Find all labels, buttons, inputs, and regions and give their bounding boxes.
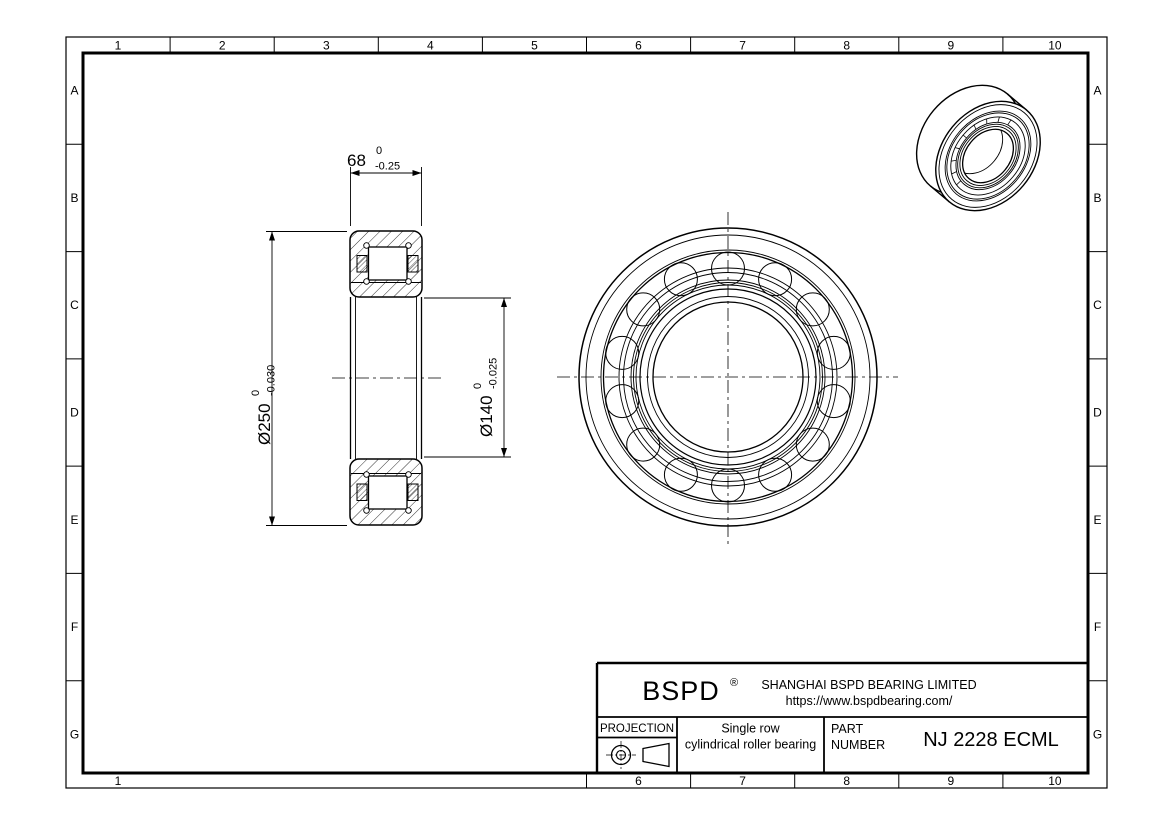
engineering-drawing: 1 2 3 4 5 6 7 8 9 10 1 6 7 8 9 10 A B C … (0, 0, 1169, 826)
grid-label: E (1093, 513, 1101, 527)
grid-label: 10 (1048, 39, 1062, 53)
dim-od-upper-tol: 0 (250, 390, 262, 396)
grid-label: D (70, 406, 79, 420)
isometric-view (895, 64, 1062, 231)
registered-trademark-icon: ® (730, 677, 738, 689)
grid-label: G (70, 727, 79, 741)
grid-label: 9 (947, 774, 954, 788)
dim-width-value: 68 (347, 151, 366, 170)
company-name: SHANGHAI BSPD BEARING LIMITED (761, 678, 976, 692)
dim-bore-value: Ø140 (477, 395, 496, 437)
drawing-sheet: 1 2 3 4 5 6 7 8 9 10 1 6 7 8 9 10 A B C … (0, 0, 1169, 826)
grid-label: 7 (739, 774, 746, 788)
grid-labels-bottom: 1 6 7 8 9 10 (115, 774, 1062, 788)
grid-label: D (1093, 406, 1102, 420)
product-type-line2: cylindrical roller bearing (685, 738, 816, 752)
grid-label: A (1093, 84, 1101, 98)
grid-label: E (70, 513, 78, 527)
grid-label: 3 (323, 39, 330, 53)
dim-od-lower-tol: -0.030 (266, 365, 278, 396)
grid-label: B (1093, 191, 1101, 205)
grid-labels-right: A B C D E F G (1093, 84, 1102, 742)
part-number-label-line1: PART (831, 722, 864, 736)
projection-label: PROJECTION (600, 723, 674, 735)
grid-label: 6 (635, 39, 642, 53)
grid-label: 10 (1048, 774, 1062, 788)
dim-width-upper-tol: 0 (376, 145, 382, 157)
grid-labels-top: 1 2 3 4 5 6 7 8 9 10 (115, 39, 1062, 53)
section-view (332, 231, 444, 525)
front-view-centerlines (557, 212, 898, 546)
front-view (557, 212, 898, 546)
product-type-line1: Single row (721, 722, 780, 736)
grid-label: 5 (531, 39, 538, 53)
company-website: https://www.bspdbearing.com/ (786, 694, 953, 708)
dimension-outer-diameter: Ø250 0 -0.030 (250, 232, 347, 526)
first-angle-projection-icon (606, 741, 669, 769)
grid-label: 1 (115, 774, 122, 788)
grid-label: F (1094, 620, 1101, 634)
grid-labels-left: A B C D E F G (70, 84, 79, 742)
grid-label: 1 (115, 39, 122, 53)
grid-label: F (71, 620, 78, 634)
grid-label: C (70, 298, 79, 312)
grid-label: 4 (427, 39, 434, 53)
grid-ticks-top (170, 37, 1003, 53)
dim-od-value: Ø250 (255, 403, 274, 445)
grid-label: 8 (843, 774, 850, 788)
dimension-bore-diameter: Ø140 0 -0.025 (424, 298, 511, 457)
dimension-width: 68 0 -0.25 (347, 145, 422, 226)
part-number-label-line2: NUMBER (831, 738, 885, 752)
dim-bore-upper-tol: 0 (472, 383, 484, 389)
grid-label: B (70, 191, 78, 205)
title-block: BSPD ® SHANGHAI BSPD BEARING LIMITED htt… (597, 663, 1088, 773)
grid-label: C (1093, 298, 1102, 312)
grid-label: 6 (635, 774, 642, 788)
grid-label: 9 (947, 39, 954, 53)
grid-label: 2 (219, 39, 226, 53)
part-number-value: NJ 2228 ECML (923, 729, 1059, 751)
dim-bore-lower-tol: -0.025 (488, 358, 500, 389)
grid-label: G (1093, 727, 1102, 741)
grid-label: A (70, 84, 78, 98)
grid-label: 7 (739, 39, 746, 53)
brand-logo: BSPD (642, 676, 720, 706)
dim-width-lower-tol: -0.25 (375, 161, 400, 173)
grid-label: 8 (843, 39, 850, 53)
grid-ticks-bottom (587, 773, 1003, 788)
